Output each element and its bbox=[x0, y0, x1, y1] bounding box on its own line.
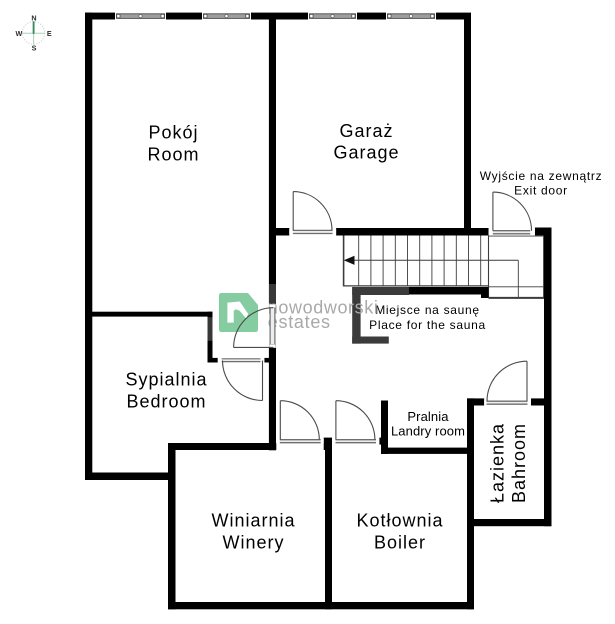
svg-text:estates: estates bbox=[268, 312, 331, 332]
svg-text:Boiler: Boiler bbox=[374, 533, 426, 553]
svg-text:Sypialnia: Sypialnia bbox=[125, 370, 207, 390]
svg-text:Winiarnia: Winiarnia bbox=[211, 511, 295, 531]
svg-text:Pokój: Pokój bbox=[148, 123, 198, 143]
svg-text:Garage: Garage bbox=[333, 143, 399, 163]
svg-text:Landry room: Landry room bbox=[391, 424, 465, 439]
svg-text:Łazienka: Łazienka bbox=[488, 423, 508, 503]
svg-text:Wyjście na zewnątrz: Wyjście na zewnątrz bbox=[480, 169, 603, 183]
svg-text:S: S bbox=[32, 43, 37, 52]
svg-text:Miejsce na saunę: Miejsce na saunę bbox=[375, 303, 480, 317]
svg-text:Winery: Winery bbox=[222, 533, 284, 553]
svg-text:Pralnia: Pralnia bbox=[407, 409, 449, 424]
svg-text:Exit door: Exit door bbox=[514, 184, 568, 198]
svg-text:Kotłownia: Kotłownia bbox=[356, 511, 443, 531]
svg-text:Place for the sauna: Place for the sauna bbox=[369, 318, 486, 332]
svg-text:Garaż: Garaż bbox=[339, 121, 393, 141]
svg-text:Bahroom: Bahroom bbox=[509, 423, 529, 503]
svg-text:W: W bbox=[16, 29, 23, 38]
svg-text:N: N bbox=[31, 13, 36, 22]
svg-text:E: E bbox=[47, 29, 52, 38]
svg-text:Room: Room bbox=[147, 145, 199, 165]
svg-text:Bedroom: Bedroom bbox=[126, 392, 206, 412]
